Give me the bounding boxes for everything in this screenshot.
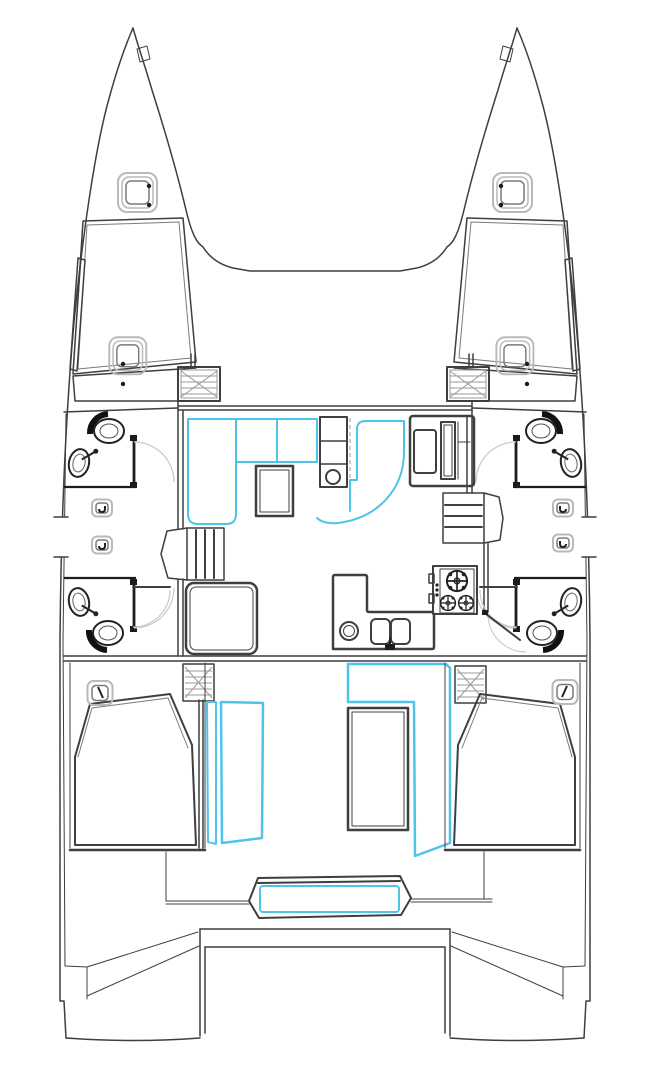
port-foredeck-hatch-hinge [121,362,125,366]
stove-burner-large [447,571,467,591]
port-foredeck-locker [178,367,220,401]
stern-rails [166,899,492,904]
port-hull-interior [54,414,224,650]
port-bow-hatch-hinge [147,203,151,207]
port-forward-toilet [90,414,124,443]
stern-transoms [66,929,584,1041]
galley [333,566,477,650]
starboard-forward-toilet [526,414,560,443]
port-cockpit-vent [183,664,214,701]
trampoline-aft-edge [203,247,447,271]
starboard-foredeck-hatch [496,337,533,374]
starboard-bulwark-inner [563,414,587,967]
port-companionway-steps [161,528,224,580]
saloon-cabinet [320,417,350,487]
starboard-bow-hatch-hinge [499,203,503,207]
door-hinge [513,482,520,488]
cockpit-highlight-L [348,664,450,856]
starboard-aft-sink [551,585,583,621]
cockpit-door-panel-narrow [207,702,216,844]
port-forward-sink [66,444,98,480]
port-hull-outer-edge [60,28,133,1038]
cockpit-bulkhead [64,656,586,661]
cabinet-round-basin [326,470,340,484]
galley-stove [429,566,477,614]
nav-table [441,422,455,479]
starboard-mattress [454,694,575,845]
starboard-porthole-1 [553,500,573,517]
starboard-bow-hatch-hinge [499,184,503,188]
door-hinge [513,579,520,585]
port-head-partitions [64,487,136,578]
galley-round-sink [340,622,358,640]
stove-burner-small [459,596,474,611]
starboard-foredeck-locker [447,367,489,401]
nav-seat [414,430,436,473]
starboard-bow-hatch [493,173,532,212]
port-aft-sink [66,585,98,621]
galley-counter [333,575,434,649]
saloon-furniture [186,416,477,654]
saloon-highlight-edges [317,421,404,523]
starboard-porthole-2 [553,535,573,552]
saloon-port-wall [178,410,183,656]
port-aft-toilet [89,621,123,650]
starboard-foredeck-hatch-hinge [525,362,529,366]
port-bow-hatch-hinge [147,184,151,188]
aft-cabins [70,663,580,850]
port-bow-fitting [137,46,150,62]
door-hinge [130,435,137,441]
starboard-companionway-steps [443,493,503,543]
door-hinge [513,435,520,441]
starboard-aft-toilet [527,621,561,650]
starboard-cockpit-vent [455,666,486,703]
port-deck-post [191,354,195,367]
port-bow-hatch [118,173,157,212]
starboard-deck-post [469,354,473,367]
port-transom-steps [87,932,199,999]
saloon-front-wall [178,406,472,410]
starboard-forward-head-door-swing [476,442,516,482]
saloon-structure [64,401,586,661]
port-porthole-2 [92,537,112,554]
foredeck [70,173,580,401]
port-boarding-gate [54,517,68,557]
door-hinge [130,482,137,488]
floorplan-drawing [0,0,650,1080]
cockpit-door-panel-wide [221,702,263,843]
port-mattress [75,694,196,845]
stove-burner-small [441,596,456,611]
starboard-boarding-gate [582,517,596,557]
starboard-foredeck-hatch-hinge [525,382,529,386]
stern-bench-cushion-highlighted [260,886,399,912]
galley-sink-bowl-2 [391,619,410,644]
aft-bench-area [166,852,492,918]
starboard-head-partitions [514,487,586,578]
saloon-table [256,466,293,516]
galley-sink-bowl-1 [371,619,390,644]
cockpit [183,610,526,856]
cockpit-table [348,708,408,830]
catamaran-floorplan-page [0,0,650,1080]
starboard-hull-forward-bulkhead [472,408,586,412]
port-porthole-1 [92,500,112,517]
starboard-aft-cabin-hatch [553,680,578,704]
starboard-hull-outer-edge [517,28,590,1038]
port-forward-head-door-swing [134,442,174,482]
port-aft-head-door-swing [134,588,174,628]
door-hinge [130,579,137,585]
saloon-aft-unit [186,583,257,654]
starboard-bow-fitting [500,46,513,62]
nav-station [410,416,474,486]
port-aft-berth [70,663,205,850]
port-hull-forward-bulkhead [64,408,178,412]
saloon-settee-highlighted [188,419,317,524]
port-foredeck-hatch-hinge [121,382,125,386]
port-bulwark-inner [63,414,87,967]
starboard-forward-sink [551,444,583,480]
starboard-transom-steps [451,932,563,999]
transom-beam-lines [200,929,450,947]
